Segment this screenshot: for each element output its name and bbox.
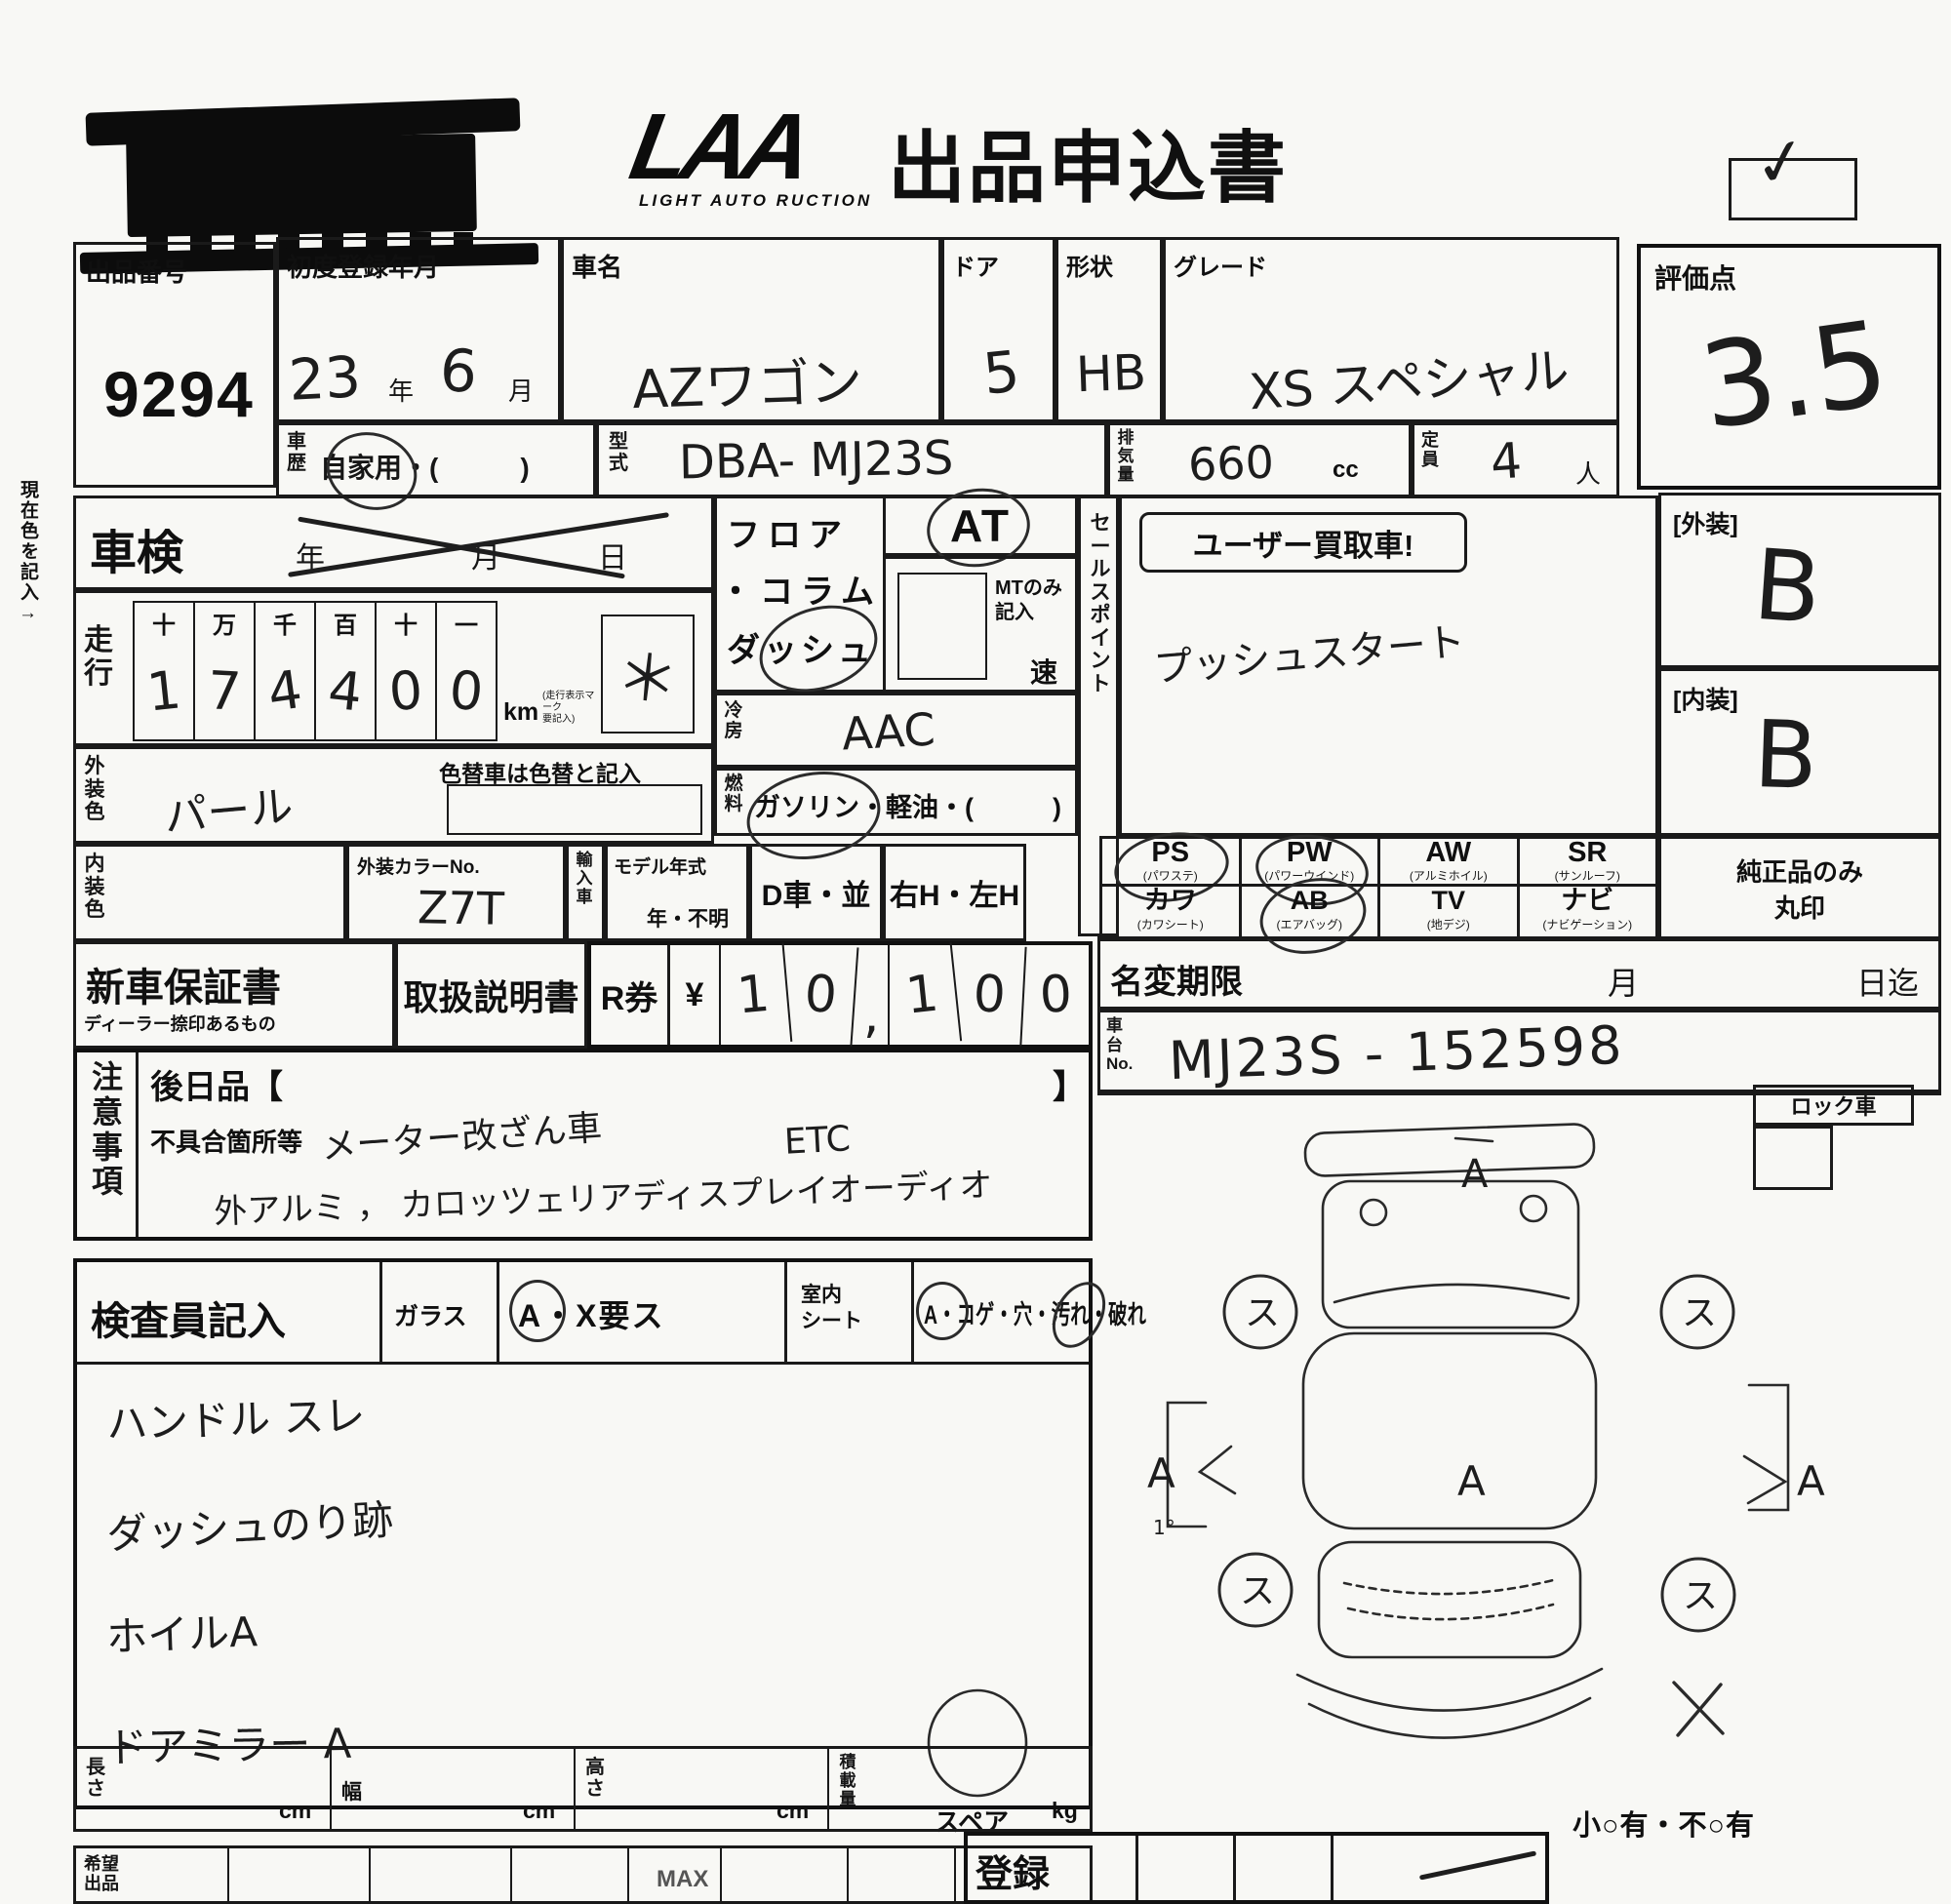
chassis-label-3: No. xyxy=(1106,1054,1133,1073)
exterior-grade-cell: [外装] B xyxy=(1658,493,1941,668)
score-value: 3.5 xyxy=(1692,296,1895,456)
displacement-label: 排気量 xyxy=(1115,428,1136,484)
history-label: 車歴 xyxy=(285,431,308,475)
dimensions-row: 長さ cm 幅 cm 高さ cm 積載量 kg xyxy=(73,1746,1093,1832)
mt-note: MTのみ 記入 xyxy=(995,576,1062,625)
color-no-label: 外装カラーNo. xyxy=(357,853,480,879)
grade-cell: グレード XS スペシャル xyxy=(1163,237,1619,422)
mileage-unit-note-line1: (走行表示マーク xyxy=(542,691,594,713)
name-change-label: 名変期限 xyxy=(1110,955,1243,1003)
defect-line-1: メーター改ざん車 xyxy=(320,1099,604,1170)
wheel-mark-rr: ス xyxy=(1683,1576,1718,1616)
capacity-cell: 定員 4 人 xyxy=(1412,422,1619,497)
equipment-cell-sr: SR (サンルーフ) xyxy=(1517,836,1659,887)
auction-sheet-scan: { "header": { "logo": "LAA", "logo_sub":… xyxy=(0,0,1951,1887)
sales-point-value: プッシュスタート xyxy=(1151,610,1467,694)
width-unit: cm xyxy=(523,1798,555,1824)
first-registration-month: 6 xyxy=(438,337,480,407)
equipment-cell-ps: PS (パワステ) xyxy=(1099,836,1242,887)
car-name-value: AZワゴン xyxy=(631,338,864,423)
grade-label: グレード xyxy=(1174,248,1267,282)
damage-mark-left: A xyxy=(1147,1449,1175,1497)
later-items-label: 後日品【 xyxy=(150,1060,283,1108)
mileage-digit: 0 xyxy=(374,640,439,741)
equipment-sub: (カワシート) xyxy=(1102,916,1239,932)
mileage-digit: 4 xyxy=(249,638,320,742)
car-name-cell: 車名 AZワゴン xyxy=(561,237,941,422)
caution-label: 注意事項 xyxy=(91,1060,124,1200)
page-title: 出品申込書 xyxy=(888,105,1288,218)
shape-value: HB xyxy=(1075,344,1147,403)
registration-hand-mark xyxy=(1419,1850,1536,1880)
handle-label: 右H・左H xyxy=(890,871,1019,914)
capacity-unit: 人 xyxy=(1575,455,1601,491)
defect-line-1b: ETC xyxy=(783,1119,852,1162)
warranty-sub: ディーラー捺印あるもの xyxy=(84,1011,276,1036)
glass-label: ガラス xyxy=(394,1297,467,1332)
door-cell: ドア 5 xyxy=(941,237,1055,422)
mileage-label: 走行 xyxy=(82,624,115,690)
door-value: 5 xyxy=(980,337,1023,407)
equipment-code: カワ xyxy=(1102,887,1239,916)
wheel-mark-fr: ス xyxy=(1682,1293,1717,1333)
displacement-unit: cc xyxy=(1333,456,1359,484)
year-unit: 年 xyxy=(388,372,414,408)
shape-cell: 形状 HB xyxy=(1055,237,1163,422)
car-name-label: 車名 xyxy=(572,248,622,284)
r-ticket-digit: 0 xyxy=(1022,944,1091,1046)
r-ticket-digit: 1 xyxy=(717,942,792,1048)
displacement-cell: 排気量 660 cc xyxy=(1107,422,1412,497)
interior-grade-cell: [内装] B xyxy=(1658,668,1941,836)
mt-cell: MTのみ 記入 速 xyxy=(883,556,1078,693)
color-no-cell: 外装カラーNo. Z7T xyxy=(346,844,566,941)
displacement-value: 660 xyxy=(1187,435,1275,491)
warranty-label: 新車保証書 xyxy=(86,956,281,1012)
sales-point-cell: ユーザー買取車! プッシュスタート xyxy=(1119,496,1658,836)
equipment-sub: (アルミホイル) xyxy=(1380,867,1517,884)
mileage-col-header: 万 xyxy=(195,603,254,642)
ac-label: 冷房 xyxy=(722,700,745,742)
r-ticket-digit: 0 xyxy=(954,943,1026,1046)
equipment-cell-aw: AW (アルミホイル) xyxy=(1377,836,1520,887)
equipment-code: AW xyxy=(1380,839,1517,867)
mileage-col-header: 十 xyxy=(135,603,193,642)
defects-label: 不具合箇所等 xyxy=(150,1123,302,1159)
chassis-label-2: 台 xyxy=(1106,1036,1123,1054)
mileage-col-header: 十 xyxy=(377,603,435,642)
mileage-col-header: 千 xyxy=(256,603,314,642)
import-car-cell: 輸入車 xyxy=(566,844,605,941)
height-unit: cm xyxy=(776,1798,809,1824)
color-no-value: Z7T xyxy=(418,881,505,935)
name-change-month-unit: 月 xyxy=(1608,959,1639,1004)
name-change-cell: 名変期限 月 日迄 xyxy=(1097,936,1941,1010)
seat-label: 室内 シート xyxy=(801,1282,862,1335)
manual-label: 取扱説明書 xyxy=(403,970,578,1020)
r-ticket-cell: R券 ¥ 1 0 , 1 0 0 xyxy=(587,941,1093,1049)
mt-gear-box xyxy=(897,573,987,680)
model-year-label: モデル年式 xyxy=(614,853,706,879)
import-car-label: 輸入車 xyxy=(574,851,595,906)
mileage-cell: 走行 十 1 万 7 千 4 百 4 十 0 一 0 km (走行表示マーク 要… xyxy=(73,590,714,746)
equipment-grid: PS (パワステ) PW (パワーウインド) AW (アルミホイル) SR (サ… xyxy=(1102,836,1658,941)
mileage-col-header: 百 xyxy=(316,603,375,642)
wish-row: 希望出品 MAX xyxy=(73,1845,1093,1904)
genuine-parts-note: 純正品のみ 丸印 xyxy=(1658,836,1941,941)
chassis-label-1: 車 xyxy=(1106,1016,1123,1035)
genuine-parts-note-line1: 純正品のみ xyxy=(1736,853,1863,889)
mt-note-line1: MTのみ xyxy=(995,577,1062,599)
fuel-label: 燃料 xyxy=(722,773,745,815)
equipment-code: TV xyxy=(1380,887,1517,916)
at-cell: AT xyxy=(883,496,1078,556)
transmission-line1: フロア xyxy=(727,508,850,556)
transmission-line2: ・コラム xyxy=(719,565,882,613)
model-year-cell: モデル年式 年・不明 xyxy=(605,844,749,941)
equipment-code: ナビ xyxy=(1520,887,1656,916)
equipment-sub: (ナビゲーション) xyxy=(1520,916,1656,932)
mileage-unit-note-line2: 要記入) xyxy=(542,714,575,725)
mileage-grid: 十 1 万 7 千 4 百 4 十 0 一 0 xyxy=(135,601,498,741)
r-ticket-digit: , xyxy=(855,945,890,1045)
glass-a-circle xyxy=(509,1280,566,1342)
margin-note: 現在色を記入→ xyxy=(16,480,41,625)
user-buyback-stamp: ユーザー買取車! xyxy=(1139,512,1467,573)
genuine-parts-note-line2: 丸印 xyxy=(1774,889,1825,925)
first-registration-cell: 初度登録年月 23 年 6 月 xyxy=(276,237,561,422)
chassis-cell: 車 台 No. MJ23S - 152598 xyxy=(1097,1010,1941,1095)
laa-logo-subtitle: LIGHT AUTO RUCTION xyxy=(639,191,872,211)
damage-mark-top: A xyxy=(1461,1152,1489,1197)
interior-color-cell: 内装色 xyxy=(73,844,346,941)
length-label: 長さ xyxy=(84,1757,107,1801)
equipment-code: SR xyxy=(1520,839,1656,867)
body-color-value: パール xyxy=(161,771,295,844)
equipment-sub: (サンルーフ) xyxy=(1520,867,1656,884)
left-small-note: 1° xyxy=(1153,1516,1175,1539)
model-code-label: 型式 xyxy=(607,431,630,475)
lot-number-value: 9294 xyxy=(103,357,255,431)
sales-point-label: セールスポイント xyxy=(1089,512,1112,695)
mileage-unit-note: (走行表示マーク 要記入) xyxy=(542,691,603,726)
user-buyback-stamp-text: ユーザー買取車! xyxy=(1193,521,1414,565)
inspector-label: 検査員記入 xyxy=(91,1289,286,1346)
capacity-label: 定員 xyxy=(1419,430,1441,469)
seat-label-line2: シート xyxy=(801,1310,862,1332)
speed-unit-label: 速 xyxy=(1030,652,1057,691)
wheel-mark-rl: ス xyxy=(1240,1571,1275,1611)
first-registration-label: 初度登録年月 xyxy=(287,248,439,284)
equipment-cell-navi: ナビ (ナビゲーション) xyxy=(1517,884,1659,941)
height-label: 高さ xyxy=(583,1757,607,1801)
load-unit: kg xyxy=(1052,1798,1078,1824)
shape-label: 形状 xyxy=(1066,248,1113,282)
mileage-digit: 7 xyxy=(192,640,256,740)
inspector-note-3: ホイルA xyxy=(105,1599,259,1663)
damage-mark-right: A xyxy=(1797,1457,1825,1505)
body-color-label: 外装色 xyxy=(82,755,107,824)
chassis-value: MJ23S - 152598 xyxy=(1168,1014,1625,1091)
r-ticket-digit: 1 xyxy=(885,942,962,1049)
seat-label-line1: 室内 xyxy=(801,1284,842,1306)
capacity-value: 4 xyxy=(1489,432,1524,491)
laa-logo: LAA xyxy=(622,94,814,201)
registration-row: 登録 xyxy=(964,1832,1549,1904)
name-change-day-unit: 日迄 xyxy=(1856,959,1919,1004)
r-ticket-currency: ¥ xyxy=(670,945,721,1045)
history-cell: 車歴 自家用・( ) xyxy=(276,422,596,497)
mileage-unit: km xyxy=(503,698,538,727)
mileage-col-header: 一 xyxy=(437,603,496,642)
shaken-label: 車検 xyxy=(90,514,183,582)
mileage-digit: 0 xyxy=(433,640,499,742)
mileage-digit: 4 xyxy=(311,639,379,742)
equipment-cell-kawa: カワ (カワシート) xyxy=(1099,884,1242,941)
wish-label: 希望出品 xyxy=(82,1854,121,1893)
load-label: 積載量 xyxy=(837,1753,858,1808)
model-code-value: DBA- MJ23S xyxy=(679,431,954,491)
chassis-label: 車 台 No. xyxy=(1106,1016,1133,1074)
r-ticket-digit: 0 xyxy=(784,943,858,1048)
max-note: MAX xyxy=(657,1866,708,1893)
exterior-grade-value: B xyxy=(1750,528,1825,647)
inspector-note-1: ハンドル スレ xyxy=(105,1382,366,1450)
shaken-cell: 車検 年 月 日 xyxy=(73,496,714,590)
defect-line-2: 外アルミ ， カロッツェリアディスプレイオーディオ xyxy=(213,1158,993,1233)
score-label: 評価点 xyxy=(1654,258,1736,297)
equipment-sub: (地デジ) xyxy=(1380,916,1517,932)
score-cell: 評価点 3.5 xyxy=(1637,244,1941,490)
interior-grade-value: B xyxy=(1752,701,1819,811)
mt-note-line2: 記入 xyxy=(995,602,1034,623)
damage-mark-center: A xyxy=(1457,1457,1486,1505)
equipment-cell-ab: AB (エアバッグ) xyxy=(1239,884,1381,941)
door-label: ドア xyxy=(952,248,999,282)
flaw-note: 小○有・不○有 xyxy=(1573,1803,1755,1844)
lot-number-cell: 出品番号 9294 xyxy=(73,242,276,488)
interior-color-label: 内装色 xyxy=(82,853,107,922)
body-color-cell: 外装色 パール 色替車は色替と記入 xyxy=(73,746,714,844)
manual-cell: 取扱説明書 xyxy=(395,941,587,1049)
car-damage-diagram: ス ス ス ス A A A A 1° スペア xyxy=(907,1097,1941,1800)
width-label: 幅 xyxy=(341,1776,362,1805)
handle-cell: 右H・左H xyxy=(883,844,1026,941)
month-unit: 月 xyxy=(508,372,534,408)
ac-value: AAC xyxy=(841,703,936,761)
registration-label: 登録 xyxy=(975,1844,1050,1897)
mileage-digit: 1 xyxy=(130,639,198,742)
lot-number-label: 出品番号 xyxy=(86,253,187,289)
exterior-grade-label: [外装] xyxy=(1673,505,1738,540)
fuel-cell: 燃料 ガソリン・軽油・( ) xyxy=(714,768,1078,836)
model-year-suffix: 年・不明 xyxy=(647,903,729,932)
grade-value: XS スペシャル xyxy=(1247,332,1572,424)
first-registration-year: 23 xyxy=(287,343,362,414)
approval-checkmark: ✓ xyxy=(1748,121,1814,204)
r-ticket-label: R券 xyxy=(591,945,670,1045)
ac-cell: 冷房 AAC xyxy=(714,693,1078,768)
inspector-note-2: ダッシュのり跡 xyxy=(105,1487,395,1561)
repaint-note: 色替車は色替と記入 xyxy=(439,755,641,788)
model-code-cell: 型式 DBA- MJ23S xyxy=(596,422,1107,497)
interior-grade-label: [内装] xyxy=(1673,681,1738,716)
length-unit: cm xyxy=(279,1798,311,1824)
repaint-box xyxy=(447,784,702,835)
dealer-label: D車・並 xyxy=(762,871,871,914)
mileage-mark: ＊ xyxy=(595,610,700,737)
wheel-mark-fl: ス xyxy=(1245,1293,1280,1333)
warranty-cell: 新車保証書 ディーラー捺印あるもの xyxy=(73,941,395,1049)
equipment-cell-tv: TV (地デジ) xyxy=(1377,884,1520,941)
